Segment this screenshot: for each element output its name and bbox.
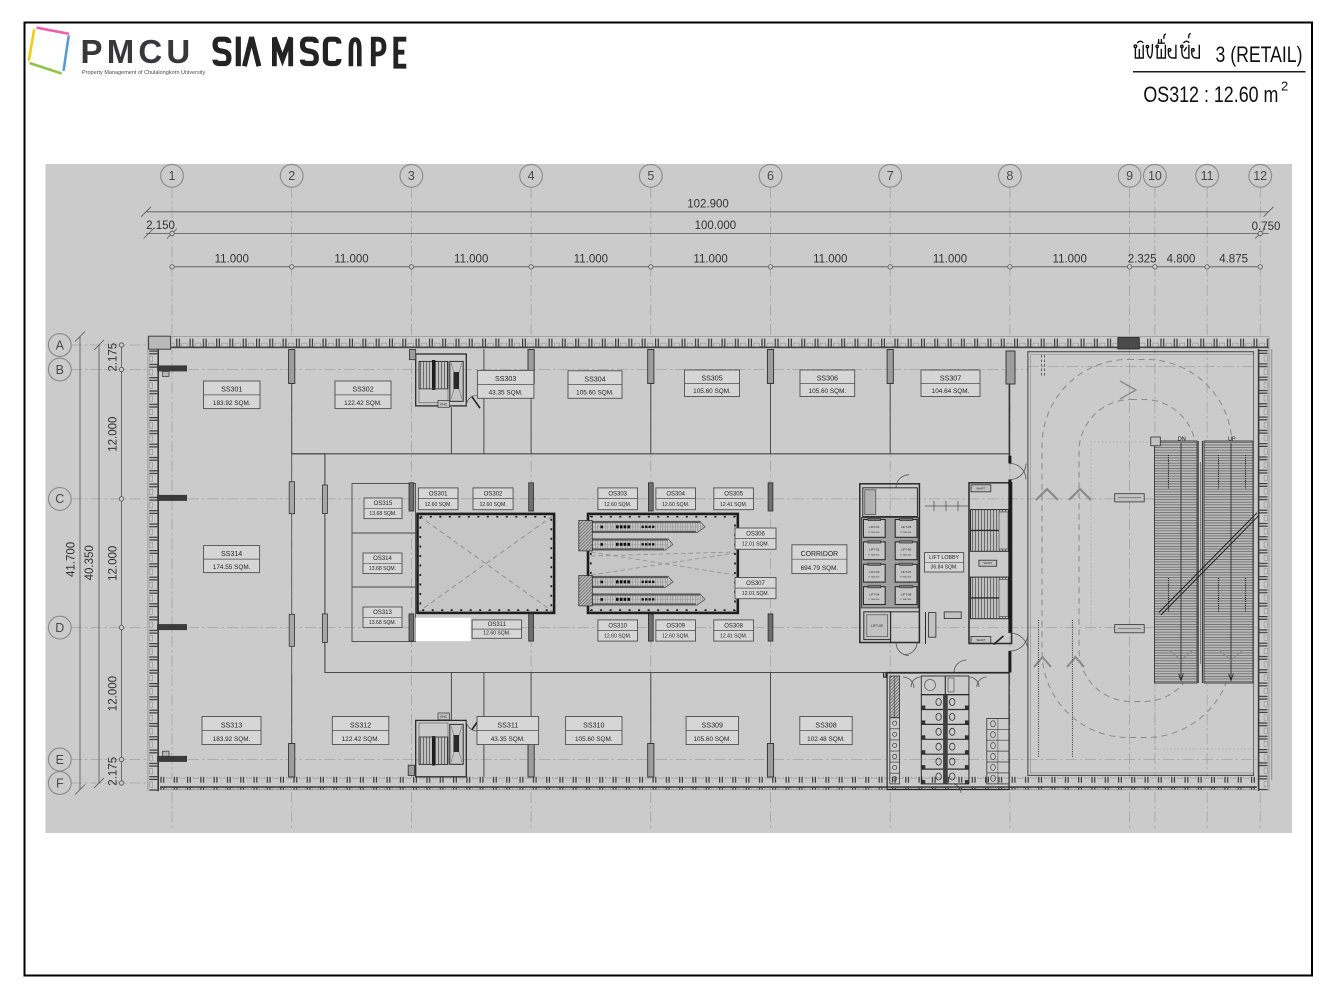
svg-text:SS303: SS303 (495, 375, 516, 383)
svg-text:105.60 SQM.: 105.60 SQM. (576, 390, 614, 397)
svg-text:43.35 SQM.: 43.35 SQM. (491, 736, 525, 743)
svg-text:12.000: 12.000 (108, 546, 120, 581)
svg-text:12.60 SQM.: 12.60 SQM. (483, 631, 510, 637)
svg-text:0.750: 0.750 (1252, 221, 1281, 233)
svg-text:2.175: 2.175 (108, 757, 120, 786)
svg-text:12.60 SQM.: 12.60 SQM. (425, 502, 452, 508)
svg-text:SS301: SS301 (221, 386, 242, 394)
svg-text:2: 2 (288, 169, 295, 183)
svg-text:2.325: 2.325 (1128, 253, 1157, 265)
svg-text:2: 2 (1281, 79, 1288, 94)
svg-text:LIFT-09: LIFT-09 (871, 624, 883, 628)
svg-text:B: B (56, 363, 64, 377)
svg-text:5: 5 (647, 169, 654, 183)
svg-text:FHC: FHC (440, 403, 447, 407)
svg-text:LIFT-05: LIFT-05 (901, 525, 912, 529)
svg-text:11.000: 11.000 (1053, 253, 1087, 265)
svg-text:P 1000 KG.: P 1000 KG. (869, 599, 881, 601)
svg-text:OS305: OS305 (724, 491, 743, 497)
svg-text:FHC: FHC (440, 715, 447, 719)
svg-text:SS305: SS305 (701, 374, 722, 382)
svg-text:OS306: OS306 (746, 531, 765, 537)
svg-text:694.79 SQM.: 694.79 SQM. (801, 565, 839, 572)
svg-text:OS314: OS314 (373, 556, 392, 562)
svg-text:100.000: 100.000 (695, 220, 737, 232)
svg-text:P 1000 KG.: P 1000 KG. (900, 554, 912, 556)
svg-text:11: 11 (1201, 169, 1214, 183)
svg-text:Property Management of Chulalo: Property Management of Chulalongkorn Uni… (82, 70, 205, 76)
svg-text:12.60 SQM.: 12.60 SQM. (604, 502, 631, 508)
svg-text:174.55 SQM.: 174.55 SQM. (213, 564, 251, 571)
svg-text:PMCU: PMCU (81, 33, 195, 70)
svg-text:12: 12 (1253, 169, 1267, 183)
svg-text:C: C (55, 492, 64, 506)
svg-text:11.000: 11.000 (933, 253, 967, 265)
svg-text:1: 1 (169, 169, 176, 183)
svg-text:12.01 SQM.: 12.01 SQM. (742, 542, 769, 548)
svg-text:13.68 SQM.: 13.68 SQM. (369, 620, 396, 626)
svg-text:SS302: SS302 (352, 386, 373, 394)
svg-text:SS308: SS308 (815, 721, 836, 729)
svg-text:11.000: 11.000 (334, 253, 368, 265)
svg-text:105.60 SQM.: 105.60 SQM. (575, 736, 613, 743)
svg-text:P 1000 KG.: P 1000 KG. (900, 599, 912, 601)
svg-text:DN: DN (1178, 437, 1186, 443)
svg-text:10: 10 (1148, 169, 1162, 183)
svg-text:6: 6 (767, 169, 774, 183)
svg-text:SS306: SS306 (817, 374, 838, 382)
svg-text:LIFT-06: LIFT-06 (901, 548, 912, 552)
svg-text:102.48 SQM.: 102.48 SQM. (807, 736, 845, 743)
svg-text:13.68 SQM.: 13.68 SQM. (369, 511, 396, 517)
svg-text:3: 3 (408, 169, 415, 183)
svg-text:OS301: OS301 (429, 491, 448, 497)
svg-text:P 1000 KG.: P 1000 KG. (869, 554, 881, 556)
svg-text:105.60 SQM.: 105.60 SQM. (693, 736, 731, 743)
svg-text:SS310: SS310 (583, 721, 604, 729)
svg-text:12.000: 12.000 (108, 417, 120, 452)
svg-text:11.000: 11.000 (574, 253, 608, 265)
svg-text:SS307: SS307 (940, 374, 961, 382)
svg-text:12.01 SQM.: 12.01 SQM. (742, 591, 769, 597)
svg-text:122.42 SQM.: 122.42 SQM. (344, 400, 382, 407)
svg-text:4.875: 4.875 (1219, 253, 1248, 265)
svg-text:SS311: SS311 (497, 721, 518, 729)
svg-text:12.60 SQM.: 12.60 SQM. (662, 502, 689, 508)
svg-text:SHAFT: SHAFT (976, 486, 985, 490)
svg-text:105.60 SQM.: 105.60 SQM. (809, 388, 847, 395)
svg-text:P 1000 KG.: P 1000 KG. (869, 532, 881, 534)
svg-text:8: 8 (1006, 169, 1013, 183)
svg-text:12.60 SQM.: 12.60 SQM. (604, 634, 631, 640)
svg-text:12.60 SQM.: 12.60 SQM. (662, 634, 689, 640)
svg-text:OS311: OS311 (488, 622, 507, 628)
svg-text:12.41 SQM.: 12.41 SQM. (720, 634, 747, 640)
svg-text:11.000: 11.000 (813, 253, 847, 265)
svg-text:OS304: OS304 (666, 491, 685, 497)
svg-text:LIFT-04: LIFT-04 (869, 592, 880, 596)
svg-text:SS304: SS304 (584, 375, 605, 383)
svg-text:4.800: 4.800 (1167, 253, 1196, 265)
svg-text:SHAFT: SHAFT (983, 561, 992, 565)
svg-text:D: D (55, 621, 64, 635)
svg-text:CORRIDOR: CORRIDOR (801, 551, 839, 558)
svg-text:E: E (56, 753, 64, 767)
svg-text:43.35 SQM.: 43.35 SQM. (489, 390, 523, 397)
svg-text:SS313: SS313 (221, 721, 242, 729)
svg-text:F: F (56, 776, 64, 790)
svg-text:LIFT-03: LIFT-03 (869, 570, 880, 574)
svg-text:OS309: OS309 (666, 623, 685, 629)
svg-text:SS309: SS309 (702, 721, 723, 729)
svg-text:4: 4 (528, 169, 535, 183)
svg-text:P 1000 KG.: P 1000 KG. (869, 577, 881, 579)
svg-text:13.68 SQM.: 13.68 SQM. (369, 566, 396, 572)
svg-text:LIFT LOBBY: LIFT LOBBY (929, 555, 959, 561)
svg-text:7: 7 (887, 169, 894, 183)
svg-text:OS310: OS310 (608, 623, 627, 629)
svg-text:LIFT-08: LIFT-08 (901, 592, 912, 596)
svg-text:3 (RETAIL): 3 (RETAIL) (1216, 42, 1303, 67)
svg-text:36.84 SQM.: 36.84 SQM. (931, 564, 958, 570)
svg-text:P 1000 KG.: P 1000 KG. (900, 577, 912, 579)
svg-text:41.700: 41.700 (66, 542, 78, 577)
svg-text:2.175: 2.175 (108, 343, 120, 372)
svg-text:2.150: 2.150 (146, 220, 175, 232)
svg-text:SHAFT: SHAFT (976, 638, 985, 642)
svg-text:UP: UP (1228, 437, 1236, 443)
svg-text:LIFT-01: LIFT-01 (869, 525, 880, 529)
svg-text:OS308: OS308 (724, 623, 743, 629)
svg-text:122.42 SQM.: 122.42 SQM. (342, 736, 380, 743)
svg-text:P 1000 KG.: P 1000 KG. (900, 532, 912, 534)
svg-text:SS312: SS312 (350, 721, 371, 729)
svg-text:12.60 SQM.: 12.60 SQM. (479, 502, 506, 508)
svg-text:40.350: 40.350 (84, 545, 96, 580)
svg-text:OS313: OS313 (373, 610, 392, 616)
svg-text:104.64 SQM.: 104.64 SQM. (932, 388, 970, 395)
svg-text:12.41 SQM.: 12.41 SQM. (720, 502, 747, 508)
svg-text:183.92 SQM.: 183.92 SQM. (213, 400, 251, 407)
svg-text:OS303: OS303 (608, 491, 627, 497)
svg-text:OS315: OS315 (374, 501, 393, 507)
svg-text:A: A (56, 338, 65, 352)
svg-text:LIFT-02: LIFT-02 (869, 548, 880, 552)
svg-text:LIFT-07: LIFT-07 (901, 570, 912, 574)
svg-text:11.000: 11.000 (215, 253, 249, 265)
svg-text:SS314: SS314 (221, 550, 242, 558)
svg-text:11.000: 11.000 (454, 253, 488, 265)
svg-text:OS302: OS302 (484, 491, 503, 497)
svg-text:OS312 : 12.60 m: OS312 : 12.60 m (1143, 82, 1278, 107)
svg-text:102.900: 102.900 (687, 198, 729, 210)
svg-text:183.92 SQM.: 183.92 SQM. (213, 736, 251, 743)
svg-text:105.60 SQM.: 105.60 SQM. (693, 388, 731, 395)
svg-text:12.000: 12.000 (108, 676, 120, 711)
svg-text:OS307: OS307 (746, 581, 765, 587)
svg-text:9: 9 (1126, 169, 1133, 183)
svg-text:11.000: 11.000 (693, 253, 727, 265)
